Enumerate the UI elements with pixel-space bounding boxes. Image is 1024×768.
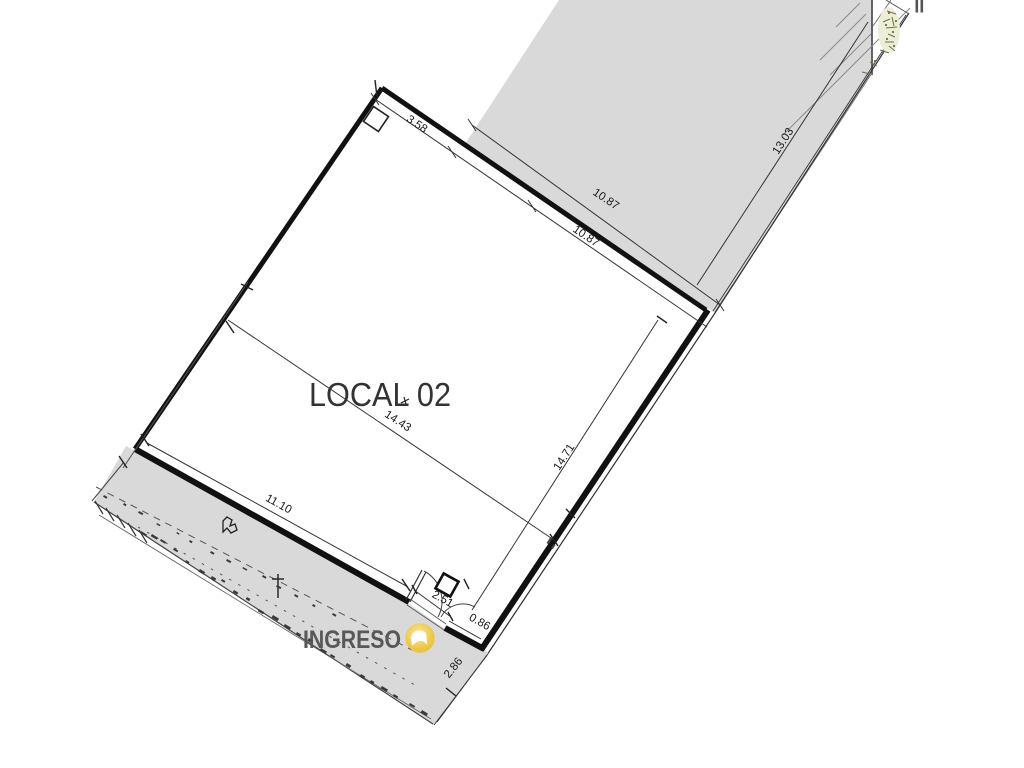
svg-text:INGRESO: INGRESO [303, 626, 401, 654]
svg-text:LOCAL 02: LOCAL 02 [309, 376, 451, 413]
